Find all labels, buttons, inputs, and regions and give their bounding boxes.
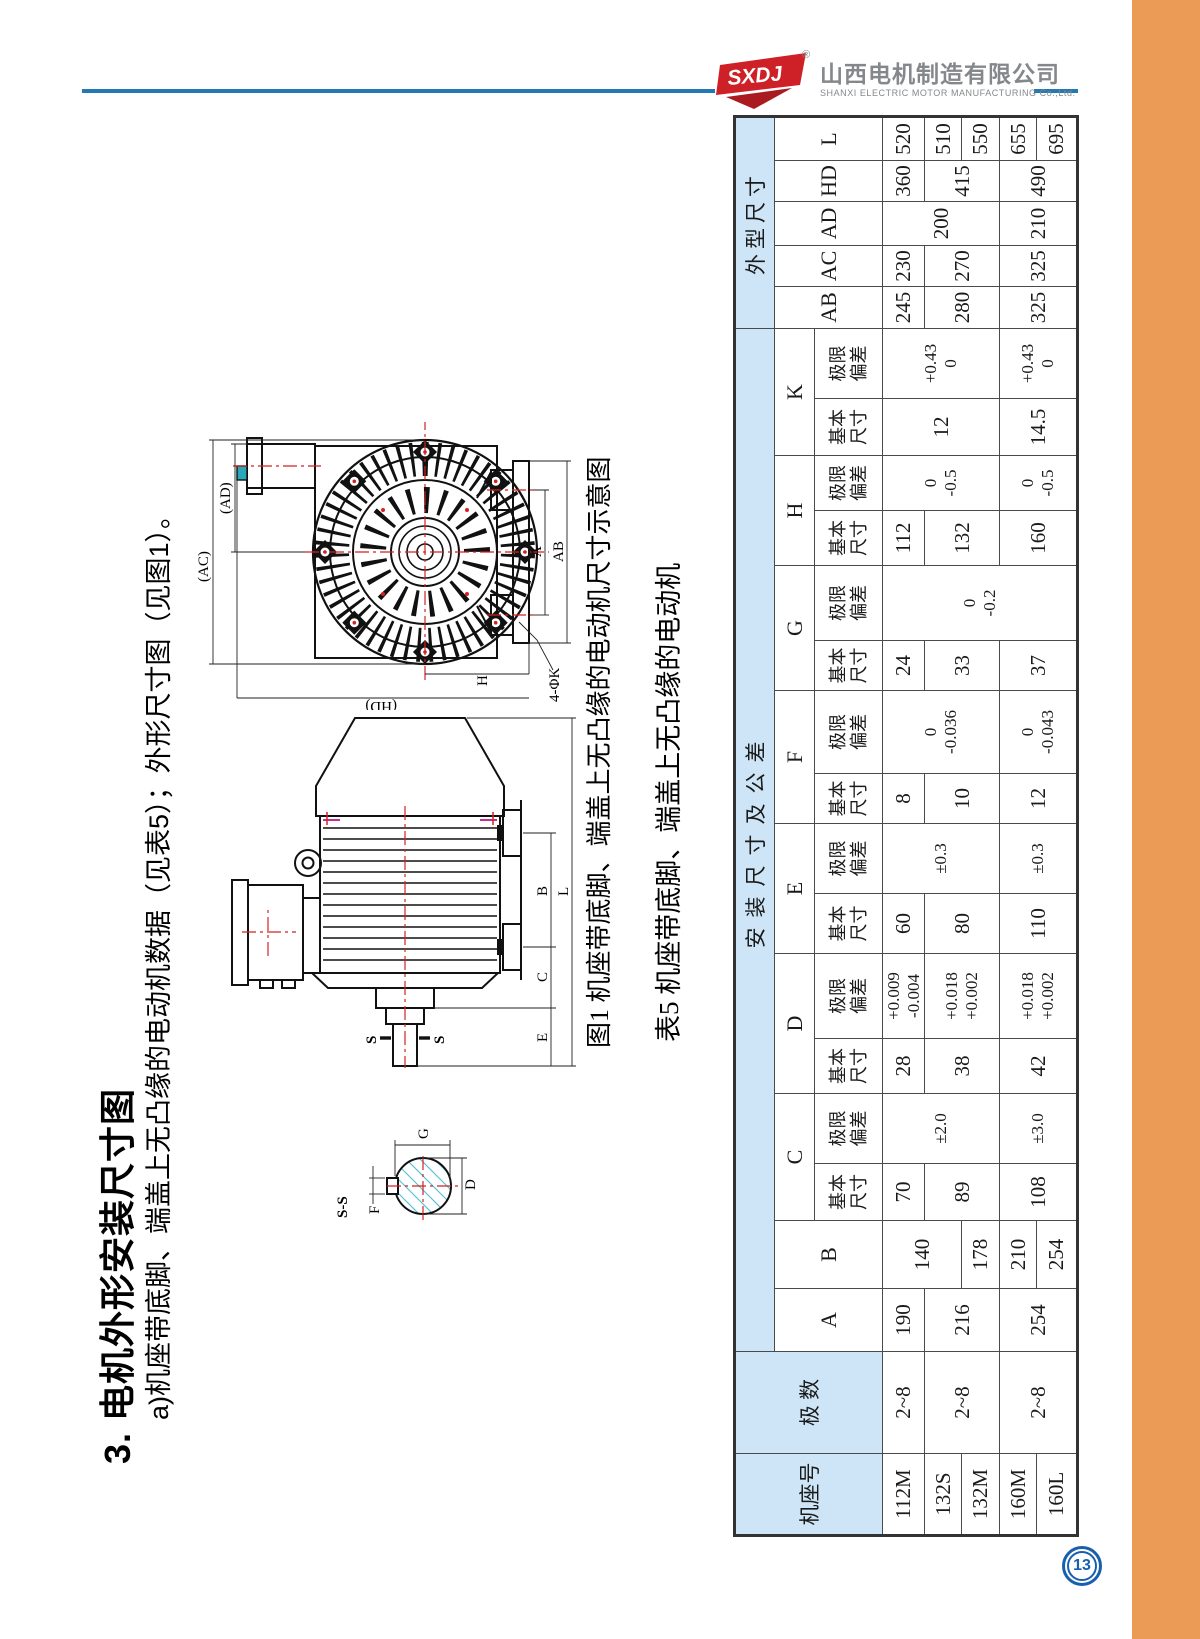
cell-c-basic: 89 <box>925 1164 1000 1221</box>
cell-e-basic: 80 <box>925 894 1000 954</box>
cell-b: 210 <box>1000 1221 1037 1289</box>
cell-g-basic: 37 <box>1000 641 1078 691</box>
cell-k-basic: 14.5 <box>1000 399 1078 456</box>
dim-label-ad: (AD) <box>218 482 234 514</box>
th-letter-d: D <box>775 954 815 1094</box>
section-title: 3. 电机外形安装尺寸图 <box>89 1088 141 1464</box>
cell-f-dev: 0-0.036 <box>883 691 1000 774</box>
th-letter-h: H <box>775 456 815 566</box>
cell-poles: 2~8 <box>1000 1352 1078 1454</box>
cell-frame: 132S <box>925 1454 962 1536</box>
cell-ab: 325 <box>1000 287 1078 329</box>
cell-l: 520 <box>883 116 925 160</box>
cell-frame: 132M <box>962 1454 1000 1536</box>
cell-h-basic: 112 <box>883 511 925 566</box>
cell-e-dev: ±0.3 <box>1000 824 1078 894</box>
cell-h-dev: 0-0.5 <box>883 456 1000 511</box>
cell-ab: 245 <box>883 287 925 329</box>
th-sub-basic: 基本尺寸 <box>815 774 883 824</box>
cell-f-basic: 12 <box>1000 774 1078 824</box>
section-title-label: S-S <box>335 1196 351 1218</box>
th-letter-g: G <box>775 566 815 691</box>
section-subtitle: a)机座带底脚、端盖上无凸缘的电动机数据（见表5）；外形尺寸图（见图1）。 <box>137 502 176 1420</box>
document-page: SXDJ ® 山西电机制造有限公司 SHANXI ELECTRIC MOTOR … <box>0 0 1200 1639</box>
section-cut-label-top: S <box>364 1036 380 1044</box>
cell-ab: 280 <box>925 287 1000 329</box>
cell-frame: 160L <box>1037 1454 1078 1536</box>
th-letter-c: C <box>775 1094 815 1221</box>
dim-label-ac: (AC) <box>196 551 212 582</box>
cell-d-dev: +0.018+0.002 <box>925 954 1000 1039</box>
dim-label-ab: AB <box>551 541 567 562</box>
cell-h-basic: 132 <box>925 511 1000 566</box>
cell-ad: 210 <box>1000 202 1078 246</box>
page-edge-band <box>1132 0 1200 1639</box>
cell-ac: 230 <box>883 246 925 287</box>
cell-hd: 360 <box>883 161 925 202</box>
th-outline-group: 外型尺寸 <box>735 116 775 328</box>
th-letter-hd: HD <box>775 161 883 202</box>
cell-ac: 325 <box>1000 246 1078 287</box>
cell-poles: 2~8 <box>883 1352 925 1454</box>
cell-f-dev: 0-0.043 <box>1000 691 1078 774</box>
th-letter-k: K <box>775 329 815 456</box>
th-sub-basic: 基本尺寸 <box>815 399 883 456</box>
th-sub-dev: 极限偏差 <box>815 1094 883 1164</box>
cell-b: 254 <box>1037 1221 1078 1289</box>
cell-l: 510 <box>925 116 962 160</box>
cell-a: 216 <box>925 1289 1000 1352</box>
cell-c-dev: ±3.0 <box>1000 1094 1078 1164</box>
cell-ac: 270 <box>925 246 1000 287</box>
shaft-section-drawing: F G D S-S <box>331 1067 476 1222</box>
dimension-table: 机座号 极 数 安装尺寸及公差 外型尺寸 A B C D E F G H K A… <box>733 115 1079 1537</box>
cell-k-dev: +0.430 <box>883 329 1000 399</box>
dim-label-b: B <box>535 886 551 896</box>
cell-d-basic: 42 <box>1000 1039 1078 1094</box>
dim-label-l: L <box>556 887 572 896</box>
th-frame: 机座号 <box>735 1454 883 1536</box>
cell-d-basic: 38 <box>925 1039 1000 1094</box>
th-letter-l: L <box>775 116 883 160</box>
cell-b: 140 <box>883 1221 962 1289</box>
cell-h-basic: 160 <box>1000 511 1078 566</box>
dim-label-f: F <box>367 1206 383 1214</box>
motor-end-view-drawing: (AC) (AD) A AB H (HD) 4-ΦK <box>187 405 585 710</box>
figure-caption: 图1 机座带底脚、端盖上无凸缘的电动机尺寸示意图 <box>579 456 616 1048</box>
th-sub-dev: 极限偏差 <box>815 456 883 511</box>
th-letter-e: E <box>775 824 815 954</box>
th-letter-a: A <box>775 1289 883 1352</box>
cell-h-dev: 0-0.5 <box>1000 456 1078 511</box>
cell-g-dev: 0-0.2 <box>883 566 1078 641</box>
dim-label-4k: 4-ΦK <box>547 668 563 702</box>
dim-label-hd: (HD) <box>365 698 397 710</box>
cell-a: 190 <box>883 1289 925 1352</box>
cell-b: 178 <box>962 1221 1000 1289</box>
cell-e-dev: ±0.3 <box>883 824 1000 894</box>
th-letter-b: B <box>775 1221 883 1289</box>
th-sub-basic: 基本尺寸 <box>815 511 883 566</box>
cell-l: 695 <box>1037 116 1078 160</box>
table-caption: 表5 机座带底脚、端盖上无凸缘的电动机 <box>647 563 686 1042</box>
th-sub-dev: 极限偏差 <box>815 329 883 399</box>
cell-g-basic: 33 <box>925 641 1000 691</box>
cell-c-dev: ±2.0 <box>883 1094 1000 1164</box>
cell-d-dev: +0.009-0.004 <box>883 954 925 1039</box>
cell-f-basic: 8 <box>883 774 925 824</box>
th-letter-ad: AD <box>775 202 883 246</box>
cell-e-basic: 110 <box>1000 894 1078 954</box>
cell-d-dev: +0.018+0.002 <box>1000 954 1078 1039</box>
cell-c-basic: 70 <box>883 1164 925 1221</box>
th-mount-group: 安装尺寸及公差 <box>735 329 775 1352</box>
th-sub-basic: 基本尺寸 <box>815 894 883 954</box>
th-letter-f: F <box>775 691 815 824</box>
th-poles: 极 数 <box>735 1352 883 1454</box>
dim-label-e: E <box>535 1033 551 1042</box>
cell-k-basic: 12 <box>883 399 1000 456</box>
section-cut-label-bottom: S <box>432 1036 448 1044</box>
motor-side-view-drawing: S S E C B L <box>220 688 585 1068</box>
cell-c-basic: 108 <box>1000 1164 1078 1221</box>
cell-k-dev: +0.430 <box>1000 329 1078 399</box>
dim-label-a: A <box>529 546 545 557</box>
cell-g-basic: 24 <box>883 641 925 691</box>
th-sub-dev: 极限偏差 <box>815 691 883 774</box>
cell-frame: 112M <box>883 1454 925 1536</box>
cell-hd: 415 <box>925 161 1000 202</box>
th-sub-dev: 极限偏差 <box>815 824 883 894</box>
dim-label-h: H <box>475 675 491 686</box>
cell-frame: 160M <box>1000 1454 1037 1536</box>
cell-hd: 490 <box>1000 161 1078 202</box>
cell-a: 254 <box>1000 1289 1078 1352</box>
dim-label-d: D <box>463 1179 476 1190</box>
rotated-content: 3. 电机外形安装尺寸图 a)机座带底脚、端盖上无凸缘的电动机数据（见表5）；外… <box>75 80 1085 1560</box>
th-letter-ab: AB <box>775 287 883 329</box>
dim-label-g: G <box>416 1128 432 1139</box>
th-sub-basic: 基本尺寸 <box>815 1164 883 1221</box>
th-sub-dev: 极限偏差 <box>815 954 883 1039</box>
cell-f-basic: 10 <box>925 774 1000 824</box>
th-sub-dev: 极限偏差 <box>815 566 883 641</box>
cell-poles: 2~8 <box>925 1352 1000 1454</box>
cell-ad: 200 <box>883 202 1000 246</box>
cell-d-basic: 28 <box>883 1039 925 1094</box>
th-sub-basic: 基本尺寸 <box>815 641 883 691</box>
dim-label-c: C <box>535 972 551 982</box>
cell-e-basic: 60 <box>883 894 925 954</box>
th-letter-ac: AC <box>775 246 883 287</box>
registered-mark-icon: ® <box>802 49 810 61</box>
cell-l: 655 <box>1000 116 1037 160</box>
th-sub-basic: 基本尺寸 <box>815 1039 883 1094</box>
cell-l: 550 <box>962 116 1000 160</box>
